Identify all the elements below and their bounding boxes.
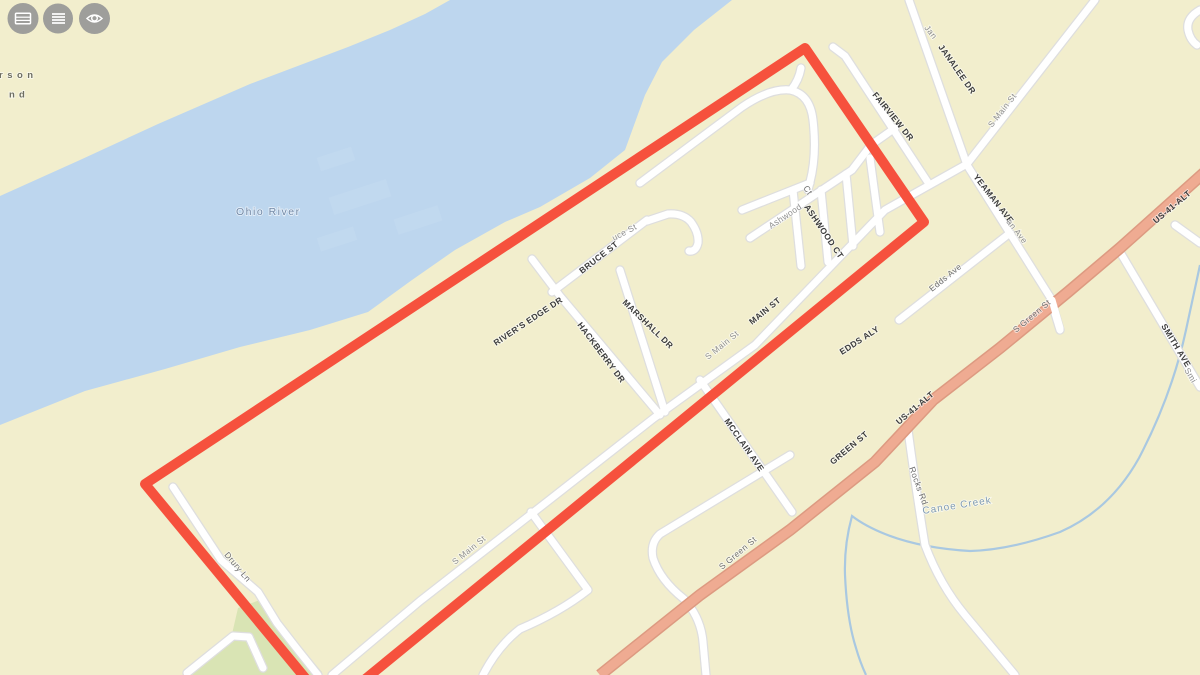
- svg-text:Ohio River: Ohio River: [236, 206, 301, 218]
- svg-text:rson: rson: [0, 70, 38, 81]
- svg-text:nd: nd: [9, 90, 29, 101]
